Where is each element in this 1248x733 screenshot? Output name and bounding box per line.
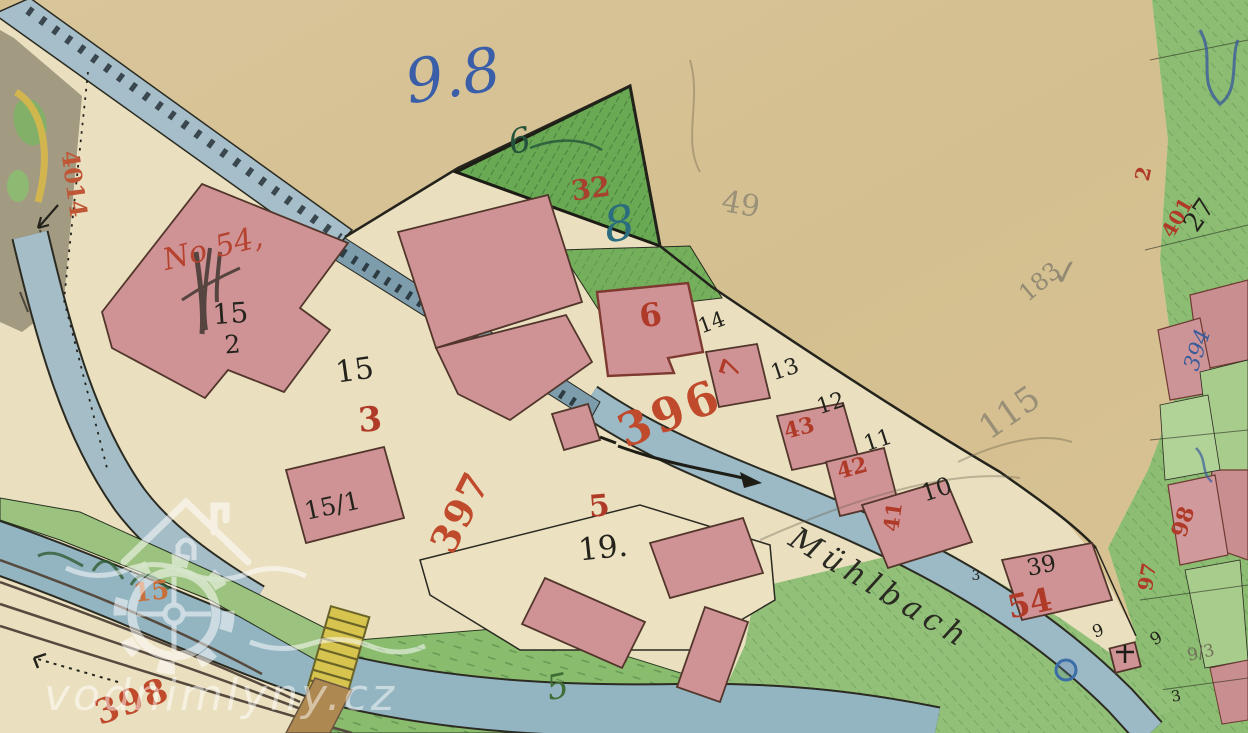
parcel-number-19: 19. [577,528,630,569]
parcel-number-15: 15 [333,351,376,391]
building-15-2-bottom: 2 [223,330,241,360]
tree-symbol [7,170,29,202]
house-number-5: 5 [587,488,611,525]
cadastral-map-viewport[interactable]: 9.86328492724014014No 54,15215315/161471… [0,0,1248,733]
parcel-number-3-a: 3 [972,568,981,584]
map-canvas: 9.86328492724014014No 54,15215315/161471… [0,0,1248,733]
building-15-2-top: 15 [211,296,249,331]
pond-circle [1056,660,1076,680]
pencil-49: 49 [719,184,763,225]
watermark-text: vodnimlyny.cz [44,670,397,721]
house-number-3: 3 [357,399,384,441]
parcel-number-97: 97 [1133,561,1161,593]
house-number-41: 41 [878,501,907,533]
annotation-blue-9-8: 9.8 [400,34,505,118]
